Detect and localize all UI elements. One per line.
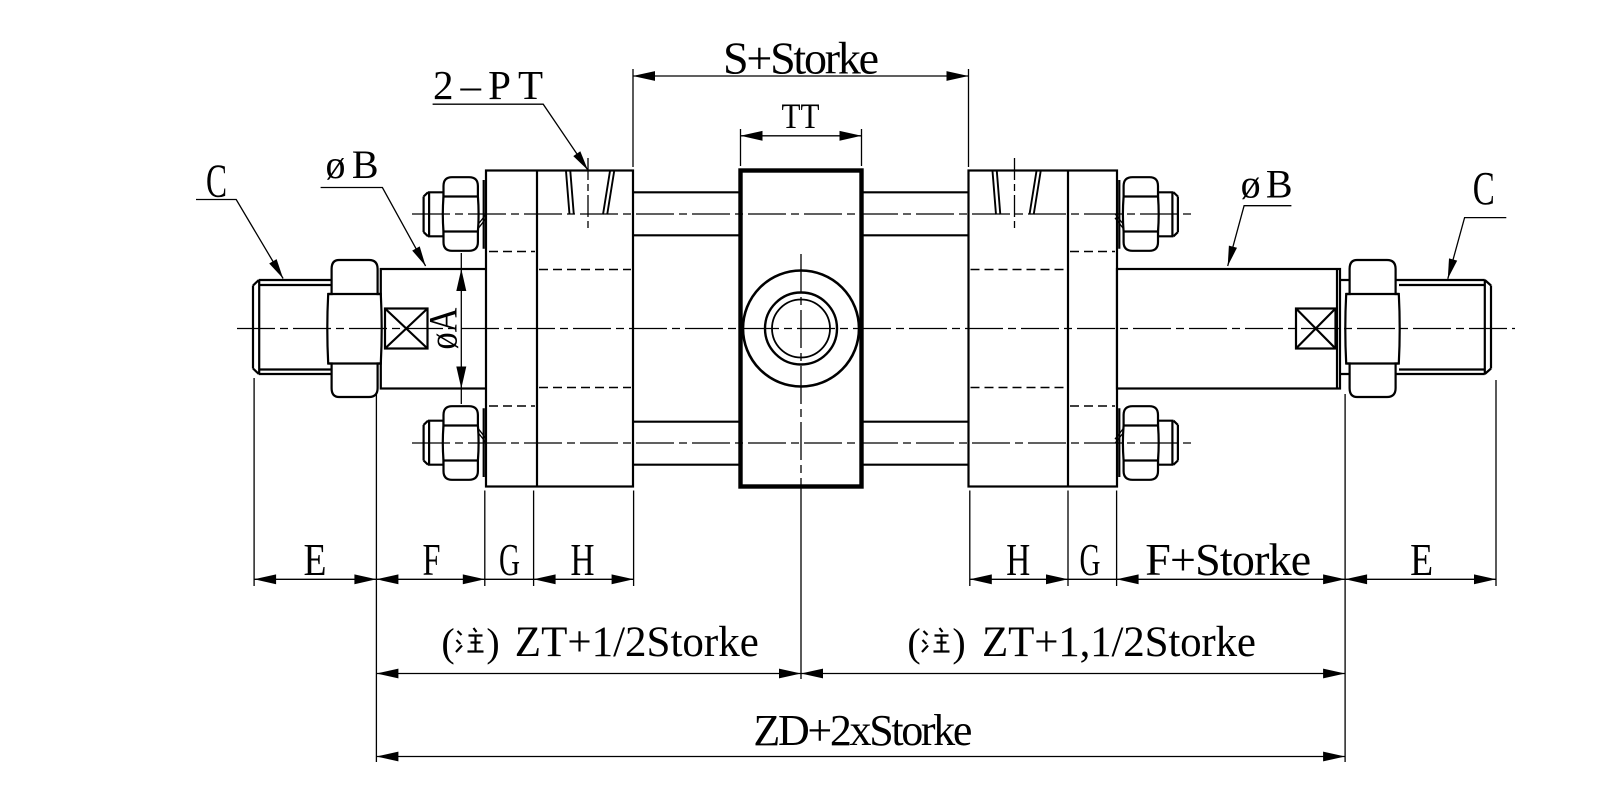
svg-text:): ) <box>486 620 499 665</box>
svg-text:G: G <box>1080 534 1101 585</box>
svg-text:): ) <box>952 620 965 665</box>
svg-text:C: C <box>1473 162 1495 215</box>
svg-text:F: F <box>423 534 441 585</box>
svg-text:E: E <box>1410 534 1433 585</box>
svg-text:G: G <box>499 534 520 585</box>
svg-text:ZT+1,1/2Storke: ZT+1,1/2Storke <box>982 619 1256 666</box>
svg-text:H: H <box>571 534 595 585</box>
svg-text:(: ( <box>441 620 454 665</box>
svg-text:S+Storke: S+Storke <box>723 33 879 84</box>
svg-text:ZD+2xStorke: ZD+2xStorke <box>753 706 972 755</box>
svg-text:2–PT: 2–PT <box>433 62 543 108</box>
svg-text:øB: øB <box>1241 162 1293 207</box>
svg-text:ZT+1/2Storke: ZT+1/2Storke <box>515 619 759 666</box>
svg-text:H: H <box>1006 534 1030 585</box>
svg-text:TT: TT <box>782 96 820 136</box>
svg-text:E: E <box>304 534 327 585</box>
svg-text:øA: øA <box>421 307 466 349</box>
svg-text:F+Storke: F+Storke <box>1145 534 1311 585</box>
svg-text:øB: øB <box>326 142 379 187</box>
svg-text:(: ( <box>907 620 920 665</box>
